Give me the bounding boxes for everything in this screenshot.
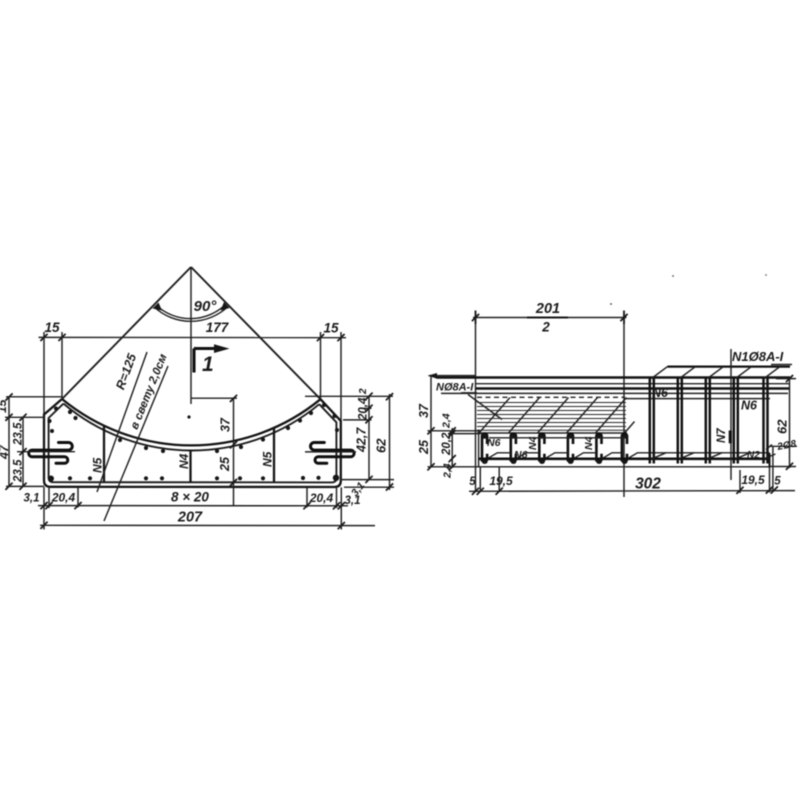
svg-text:1: 1 bbox=[202, 353, 214, 376]
svg-text:62: 62 bbox=[374, 438, 389, 453]
svg-text:N6: N6 bbox=[514, 449, 528, 461]
svg-text:N6: N6 bbox=[652, 386, 669, 400]
svg-text:37: 37 bbox=[417, 403, 431, 418]
svg-text:25: 25 bbox=[218, 456, 232, 472]
svg-text:NØ8A-I: NØ8A-I bbox=[436, 382, 474, 394]
svg-text:15: 15 bbox=[323, 321, 339, 336]
svg-text:5: 5 bbox=[469, 476, 476, 488]
svg-text:3,1: 3,1 bbox=[345, 495, 361, 507]
svg-text:19,5: 19,5 bbox=[741, 473, 765, 487]
svg-text:62: 62 bbox=[775, 419, 790, 434]
svg-text:23,5: 23,5 bbox=[13, 459, 25, 483]
svg-text:N5: N5 bbox=[91, 457, 105, 473]
svg-text:37: 37 bbox=[219, 417, 233, 432]
svg-text:2,4: 2,4 bbox=[441, 413, 453, 429]
svg-text:N4: N4 bbox=[177, 453, 191, 469]
svg-text:N4: N4 bbox=[583, 436, 595, 450]
svg-text:2: 2 bbox=[541, 320, 550, 335]
svg-text:20,2: 20,2 bbox=[441, 432, 453, 456]
svg-text:N6: N6 bbox=[741, 399, 758, 413]
svg-text:20,4: 20,4 bbox=[309, 491, 334, 505]
svg-text:42,7: 42,7 bbox=[355, 427, 369, 453]
svg-text:N5: N5 bbox=[261, 451, 275, 467]
svg-text:302: 302 bbox=[635, 476, 661, 493]
svg-text:19,5: 19,5 bbox=[489, 474, 513, 488]
svg-text:N7: N7 bbox=[716, 428, 728, 443]
svg-text:5: 5 bbox=[774, 476, 781, 488]
svg-text:2Ø8: 2Ø8 bbox=[775, 438, 797, 453]
svg-text:47: 47 bbox=[0, 444, 11, 460]
svg-text:90°: 90° bbox=[194, 298, 218, 315]
svg-text:N2: N2 bbox=[747, 450, 760, 461]
svg-text:3,1: 3,1 bbox=[24, 493, 40, 505]
svg-text:2: 2 bbox=[358, 388, 369, 395]
svg-text:N4: N4 bbox=[527, 436, 539, 450]
svg-text:177: 177 bbox=[206, 320, 230, 335]
svg-text:20,4: 20,4 bbox=[51, 491, 76, 505]
svg-text:23,5: 23,5 bbox=[13, 422, 25, 446]
svg-text:8 × 20: 8 × 20 bbox=[171, 490, 209, 505]
svg-text:N6: N6 bbox=[487, 437, 501, 449]
svg-text:25: 25 bbox=[417, 439, 431, 455]
svg-text:2,4: 2,4 bbox=[442, 463, 454, 479]
svg-text:15: 15 bbox=[0, 399, 9, 413]
svg-text:207: 207 bbox=[177, 510, 203, 526]
svg-text:N1Ø8A-I: N1Ø8A-I bbox=[732, 349, 784, 364]
svg-text:15: 15 bbox=[44, 320, 60, 335]
svg-text:201: 201 bbox=[535, 301, 560, 317]
